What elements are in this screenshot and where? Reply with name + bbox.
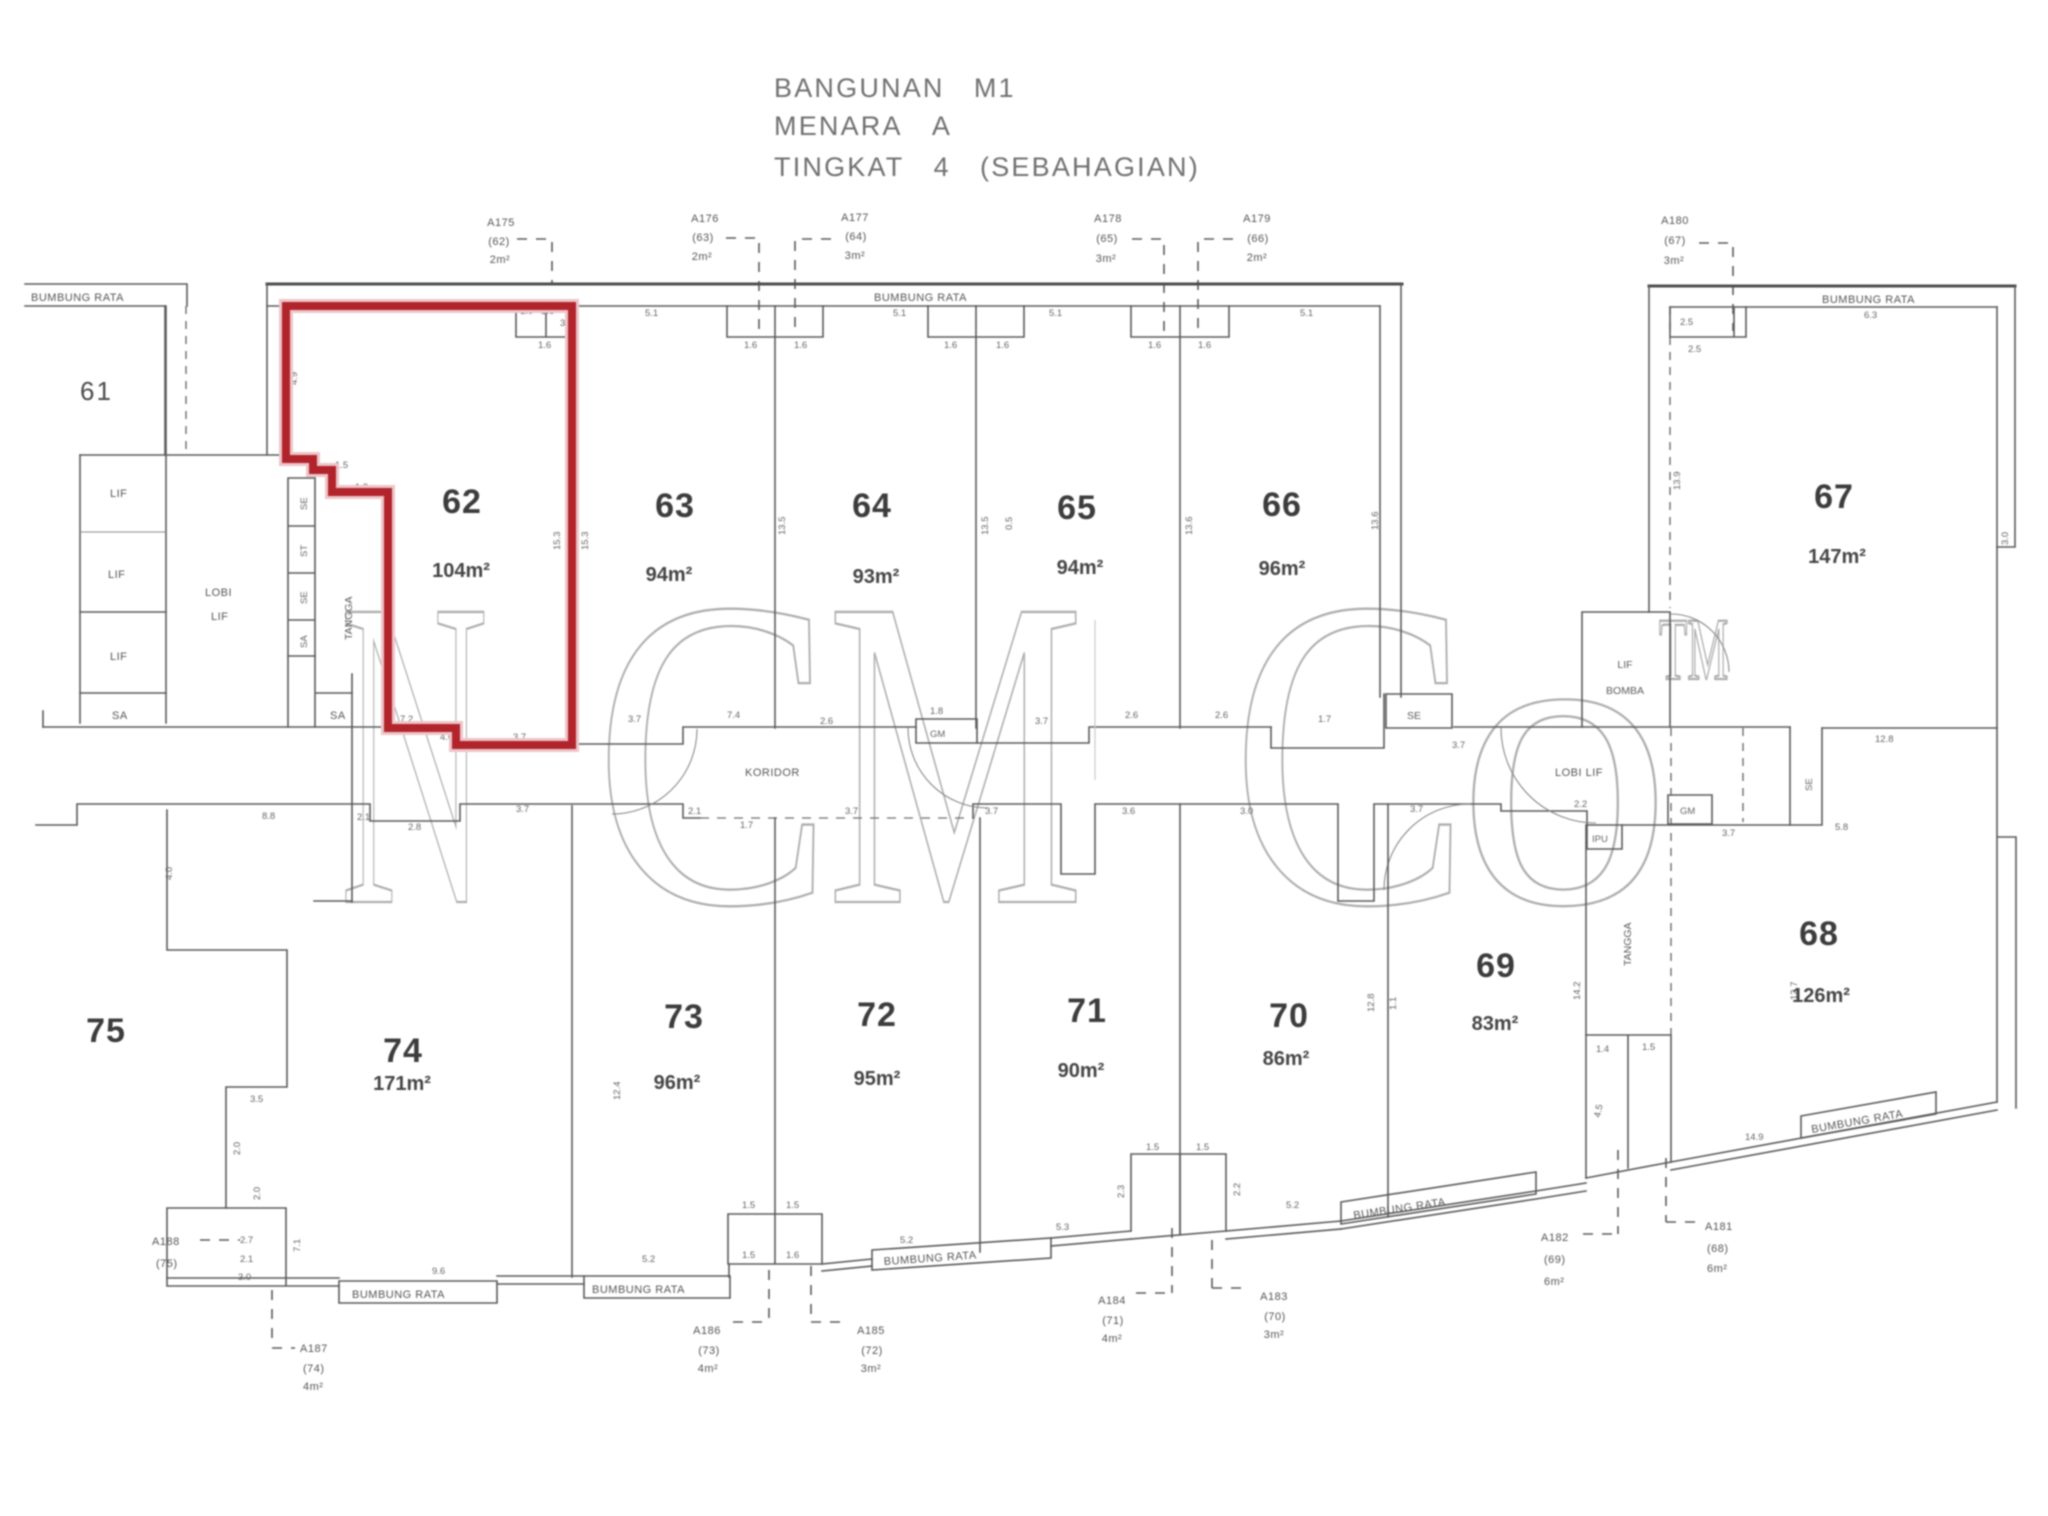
svg-text:A186: A186 — [693, 1325, 721, 1337]
svg-text:13.6: 13.6 — [1184, 517, 1195, 536]
svg-text:2.2: 2.2 — [1574, 799, 1587, 810]
svg-text:2.0: 2.0 — [232, 1142, 243, 1155]
svg-text:(74): (74) — [303, 1363, 325, 1375]
svg-text:64: 64 — [852, 487, 892, 525]
svg-text:1.5: 1.5 — [742, 1250, 755, 1261]
svg-text:70: 70 — [1269, 997, 1309, 1035]
svg-text:63: 63 — [655, 487, 695, 525]
svg-text:4m²: 4m² — [1102, 1333, 1122, 1345]
svg-text:2.5: 2.5 — [1688, 344, 1701, 355]
svg-text:LIF: LIF — [110, 488, 127, 500]
svg-text:1.1: 1.1 — [1388, 997, 1399, 1010]
svg-text:3m²: 3m² — [1264, 1329, 1284, 1341]
svg-text:2.6: 2.6 — [1125, 710, 1138, 721]
svg-text:1.6: 1.6 — [996, 340, 1009, 351]
svg-text:SE: SE — [299, 591, 310, 604]
svg-text:7.1: 7.1 — [292, 1239, 303, 1252]
svg-text:1.6: 1.6 — [744, 340, 757, 351]
svg-text:A184: A184 — [1098, 1295, 1126, 1307]
svg-text:TANGGA: TANGGA — [343, 596, 355, 640]
svg-text:2.1: 2.1 — [240, 1254, 253, 1265]
svg-text:(69): (69) — [1544, 1254, 1566, 1266]
svg-text:3.0: 3.0 — [238, 1272, 251, 1283]
svg-text:1.6: 1.6 — [944, 340, 957, 351]
svg-text:(73): (73) — [698, 1345, 720, 1357]
svg-text:6m²: 6m² — [1707, 1263, 1727, 1275]
svg-text:(72): (72) — [861, 1345, 883, 1357]
svg-text:SA: SA — [112, 710, 128, 722]
svg-text:12.4: 12.4 — [612, 1082, 623, 1101]
svg-text:69: 69 — [1476, 947, 1516, 985]
svg-text:BUMBUNG RATA: BUMBUNG RATA — [592, 1284, 685, 1296]
svg-text:SE: SE — [299, 497, 310, 510]
svg-text:86m²: 86m² — [1263, 1048, 1310, 1070]
svg-text:62: 62 — [442, 483, 482, 521]
svg-text:GM: GM — [930, 729, 945, 740]
svg-text:73: 73 — [664, 998, 704, 1036]
svg-text:ST: ST — [299, 545, 310, 557]
svg-text:A179: A179 — [1243, 213, 1271, 225]
svg-text:3.5: 3.5 — [250, 1094, 263, 1105]
svg-text:1.6: 1.6 — [538, 340, 551, 351]
svg-text:3.7: 3.7 — [1452, 740, 1465, 751]
svg-text:1.5: 1.5 — [1642, 1042, 1655, 1053]
svg-text:A187: A187 — [300, 1343, 328, 1355]
svg-text:2m²: 2m² — [490, 254, 510, 266]
svg-text:6.3: 6.3 — [1864, 310, 1877, 321]
svg-text:14.2: 14.2 — [1572, 982, 1583, 1001]
svg-text:LOBI LIF: LOBI LIF — [1555, 767, 1603, 779]
svg-text:LIF: LIF — [108, 569, 125, 581]
svg-text:A177: A177 — [841, 212, 869, 224]
svg-text:13.9: 13.9 — [1672, 472, 1683, 491]
svg-text:2.7: 2.7 — [240, 1235, 253, 1246]
svg-text:2.8: 2.8 — [408, 822, 421, 833]
svg-text:(67): (67) — [1664, 235, 1686, 247]
svg-text:61: 61 — [80, 376, 113, 406]
svg-text:1.7: 1.7 — [740, 820, 753, 831]
svg-text:1.5: 1.5 — [1196, 1142, 1209, 1153]
svg-text:C: C — [594, 509, 833, 999]
svg-text:BUMBUNG RATA: BUMBUNG RATA — [874, 292, 967, 304]
svg-text:94m²: 94m² — [646, 564, 693, 586]
svg-text:A185: A185 — [857, 1325, 885, 1337]
svg-text:75: 75 — [86, 1012, 126, 1050]
svg-text:71: 71 — [1067, 992, 1107, 1030]
svg-text:94m²: 94m² — [1057, 557, 1104, 579]
svg-text:A176: A176 — [691, 213, 719, 225]
svg-text:2.3: 2.3 — [1116, 1185, 1127, 1198]
svg-text:65: 65 — [1057, 489, 1097, 527]
svg-text:6m²: 6m² — [1544, 1276, 1564, 1288]
svg-text:3.7: 3.7 — [1410, 804, 1423, 815]
svg-text:96m²: 96m² — [1259, 558, 1306, 580]
svg-text:12.8: 12.8 — [1875, 734, 1894, 745]
svg-text:93m²: 93m² — [853, 566, 900, 588]
svg-text:BUMBUNG RATA: BUMBUNG RATA — [352, 1289, 445, 1301]
svg-text:SA: SA — [299, 635, 310, 648]
svg-text:90m²: 90m² — [1058, 1060, 1105, 1082]
svg-text:(65): (65) — [1096, 233, 1118, 245]
svg-text:A178: A178 — [1094, 213, 1122, 225]
svg-text:5.1: 5.1 — [1049, 308, 1062, 319]
svg-text:147m²: 147m² — [1808, 546, 1866, 568]
svg-text:72: 72 — [857, 996, 897, 1034]
svg-text:3.7: 3.7 — [1035, 716, 1048, 727]
svg-text:4m²: 4m² — [698, 1363, 718, 1375]
svg-text:171m²: 171m² — [373, 1073, 431, 1095]
svg-text:9.6: 9.6 — [432, 1266, 445, 1277]
svg-text:2m²: 2m² — [692, 251, 712, 263]
svg-text:0.5: 0.5 — [1004, 517, 1015, 530]
svg-text:3m²: 3m² — [861, 1363, 881, 1375]
svg-text:SE: SE — [1804, 778, 1815, 791]
svg-text:12.8: 12.8 — [1366, 994, 1377, 1013]
svg-text:3.7: 3.7 — [985, 806, 998, 817]
svg-text:15.3: 15.3 — [552, 532, 563, 551]
svg-text:1.5: 1.5 — [786, 1200, 799, 1211]
svg-text:GM: GM — [1680, 806, 1695, 817]
svg-text:1.4: 1.4 — [1596, 1044, 1609, 1055]
svg-text:5.2: 5.2 — [642, 1254, 655, 1265]
svg-text:2.6: 2.6 — [1215, 710, 1228, 721]
svg-text:5.2: 5.2 — [1286, 1200, 1299, 1211]
svg-text:A182: A182 — [1541, 1232, 1569, 1244]
svg-text:1.6: 1.6 — [1198, 340, 1211, 351]
svg-text:A181: A181 — [1705, 1221, 1733, 1233]
svg-text:5.3: 5.3 — [1056, 1222, 1069, 1233]
svg-text:2.0: 2.0 — [252, 1187, 263, 1200]
svg-text:12.7: 12.7 — [1789, 982, 1800, 1001]
svg-text:(62): (62) — [488, 236, 510, 248]
svg-text:15.3: 15.3 — [580, 532, 591, 551]
svg-text:67: 67 — [1814, 478, 1854, 516]
svg-text:A175: A175 — [487, 217, 515, 229]
svg-text:8.8: 8.8 — [262, 811, 275, 822]
svg-text:(70): (70) — [1264, 1311, 1286, 1323]
svg-text:3.6: 3.6 — [1122, 806, 1135, 817]
svg-text:3m²: 3m² — [1096, 253, 1116, 265]
svg-text:66: 66 — [1262, 486, 1302, 524]
svg-text:1.6: 1.6 — [786, 1250, 799, 1261]
svg-text:LIF: LIF — [110, 651, 127, 663]
svg-text:3.7: 3.7 — [845, 806, 858, 817]
svg-text:BUMBUNG RATA: BUMBUNG RATA — [1822, 294, 1915, 306]
svg-text:KORIDOR: KORIDOR — [745, 767, 800, 779]
svg-text:13.5: 13.5 — [980, 517, 991, 536]
svg-text:3m²: 3m² — [845, 250, 865, 262]
svg-text:3.7: 3.7 — [628, 714, 641, 725]
svg-text:96m²: 96m² — [654, 1072, 701, 1094]
svg-text:LIF: LIF — [211, 611, 228, 623]
svg-text:1.8: 1.8 — [930, 706, 943, 717]
svg-text:(68): (68) — [1707, 1243, 1729, 1255]
svg-text:2m²: 2m² — [1247, 252, 1267, 264]
svg-text:(64): (64) — [845, 231, 867, 243]
svg-text:13.6: 13.6 — [1370, 512, 1381, 531]
svg-text:2.6: 2.6 — [820, 716, 833, 727]
svg-text:A188: A188 — [152, 1236, 180, 1248]
svg-text:BANGUNAN M1: BANGUNAN M1 — [774, 73, 1016, 103]
svg-text:1.5: 1.5 — [742, 1200, 755, 1211]
svg-text:1.5: 1.5 — [1146, 1142, 1159, 1153]
svg-text:3.0: 3.0 — [1240, 806, 1253, 817]
svg-text:4m²: 4m² — [303, 1381, 323, 1393]
svg-text:IPU: IPU — [1592, 834, 1608, 845]
svg-text:A180: A180 — [1661, 215, 1689, 227]
svg-text:A183: A183 — [1260, 1291, 1288, 1303]
svg-text:5.2: 5.2 — [900, 1235, 913, 1246]
svg-text:SA: SA — [330, 710, 346, 722]
svg-text:95m²: 95m² — [854, 1068, 901, 1090]
svg-text:LIF: LIF — [1617, 659, 1632, 671]
svg-text:3.7: 3.7 — [1722, 828, 1735, 839]
svg-text:2.1: 2.1 — [688, 806, 701, 817]
svg-text:68: 68 — [1799, 915, 1839, 953]
svg-text:(63): (63) — [692, 232, 714, 244]
svg-text:126m²: 126m² — [1792, 985, 1850, 1007]
svg-text:5.1: 5.1 — [645, 308, 658, 319]
svg-text:104m²: 104m² — [432, 560, 490, 582]
svg-text:SE: SE — [1407, 710, 1421, 722]
svg-text:1.6: 1.6 — [794, 340, 807, 351]
svg-text:2.5: 2.5 — [1680, 317, 1693, 328]
svg-text:2.1: 2.1 — [357, 812, 370, 823]
svg-text:1.7: 1.7 — [1318, 714, 1331, 725]
svg-text:1.6: 1.6 — [1148, 340, 1161, 351]
svg-text:C: C — [1231, 509, 1470, 999]
svg-text:TANGGA: TANGGA — [1622, 922, 1634, 966]
svg-text:3m²: 3m² — [1664, 255, 1684, 267]
svg-text:TINGKAT 4 (SEBAHAGIAN): TINGKAT 4 (SEBAHAGIAN) — [774, 152, 1200, 182]
svg-text:(66): (66) — [1247, 233, 1269, 245]
svg-text:3.0: 3.0 — [2000, 532, 2011, 545]
svg-text:74: 74 — [383, 1032, 423, 1070]
svg-text:13.5: 13.5 — [777, 517, 788, 536]
svg-text:BUMBUNG RATA: BUMBUNG RATA — [31, 292, 124, 304]
svg-text:LOBI: LOBI — [205, 587, 232, 599]
svg-text:83m²: 83m² — [1472, 1013, 1519, 1035]
svg-text:BOMBA: BOMBA — [1606, 685, 1644, 697]
svg-text:2.2: 2.2 — [1232, 1183, 1243, 1196]
svg-text:7.4: 7.4 — [727, 710, 740, 721]
svg-text:(71): (71) — [1102, 1315, 1124, 1327]
svg-text:5.1: 5.1 — [893, 308, 906, 319]
svg-text:(75): (75) — [156, 1258, 178, 1270]
svg-text:MENARA A: MENARA A — [774, 111, 952, 141]
svg-text:o: o — [1457, 520, 1672, 996]
svg-text:3.7: 3.7 — [516, 804, 529, 815]
svg-text:4.0: 4.0 — [164, 867, 175, 880]
svg-text:5.8: 5.8 — [1835, 822, 1848, 833]
svg-text:14.9: 14.9 — [1745, 1132, 1764, 1143]
svg-text:5.1: 5.1 — [1300, 308, 1313, 319]
